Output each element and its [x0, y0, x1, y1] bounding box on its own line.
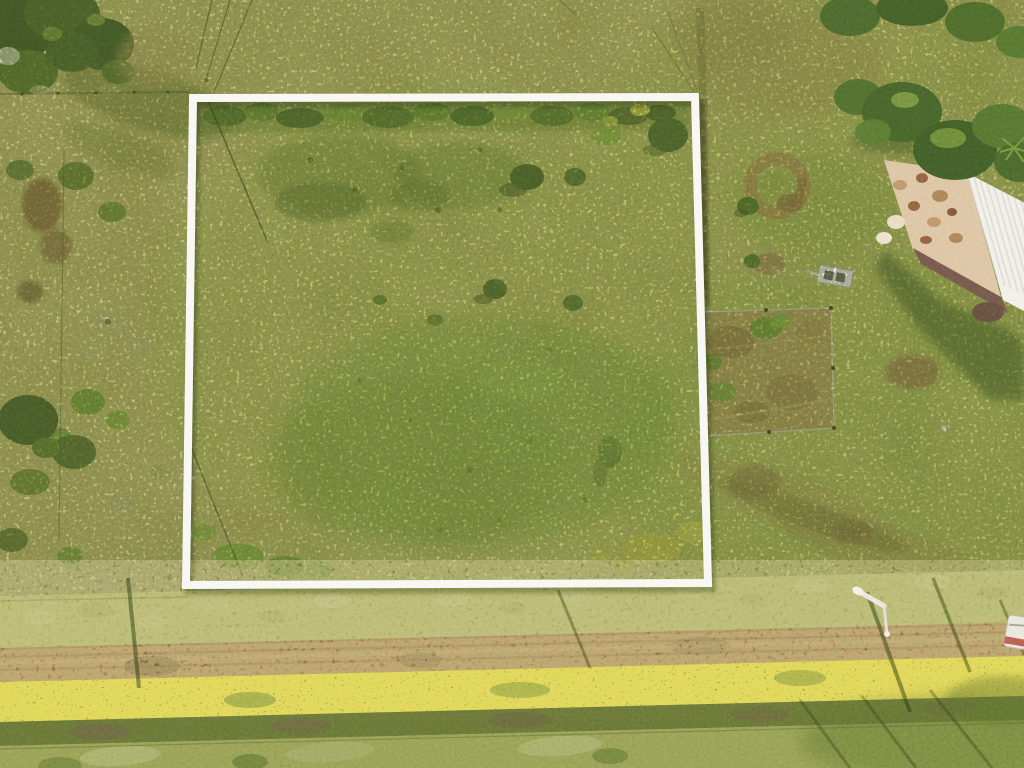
screenshot-stage	[0, 0, 1024, 768]
grain-overlay	[0, 0, 1024, 768]
aerial-photo	[0, 0, 1024, 768]
